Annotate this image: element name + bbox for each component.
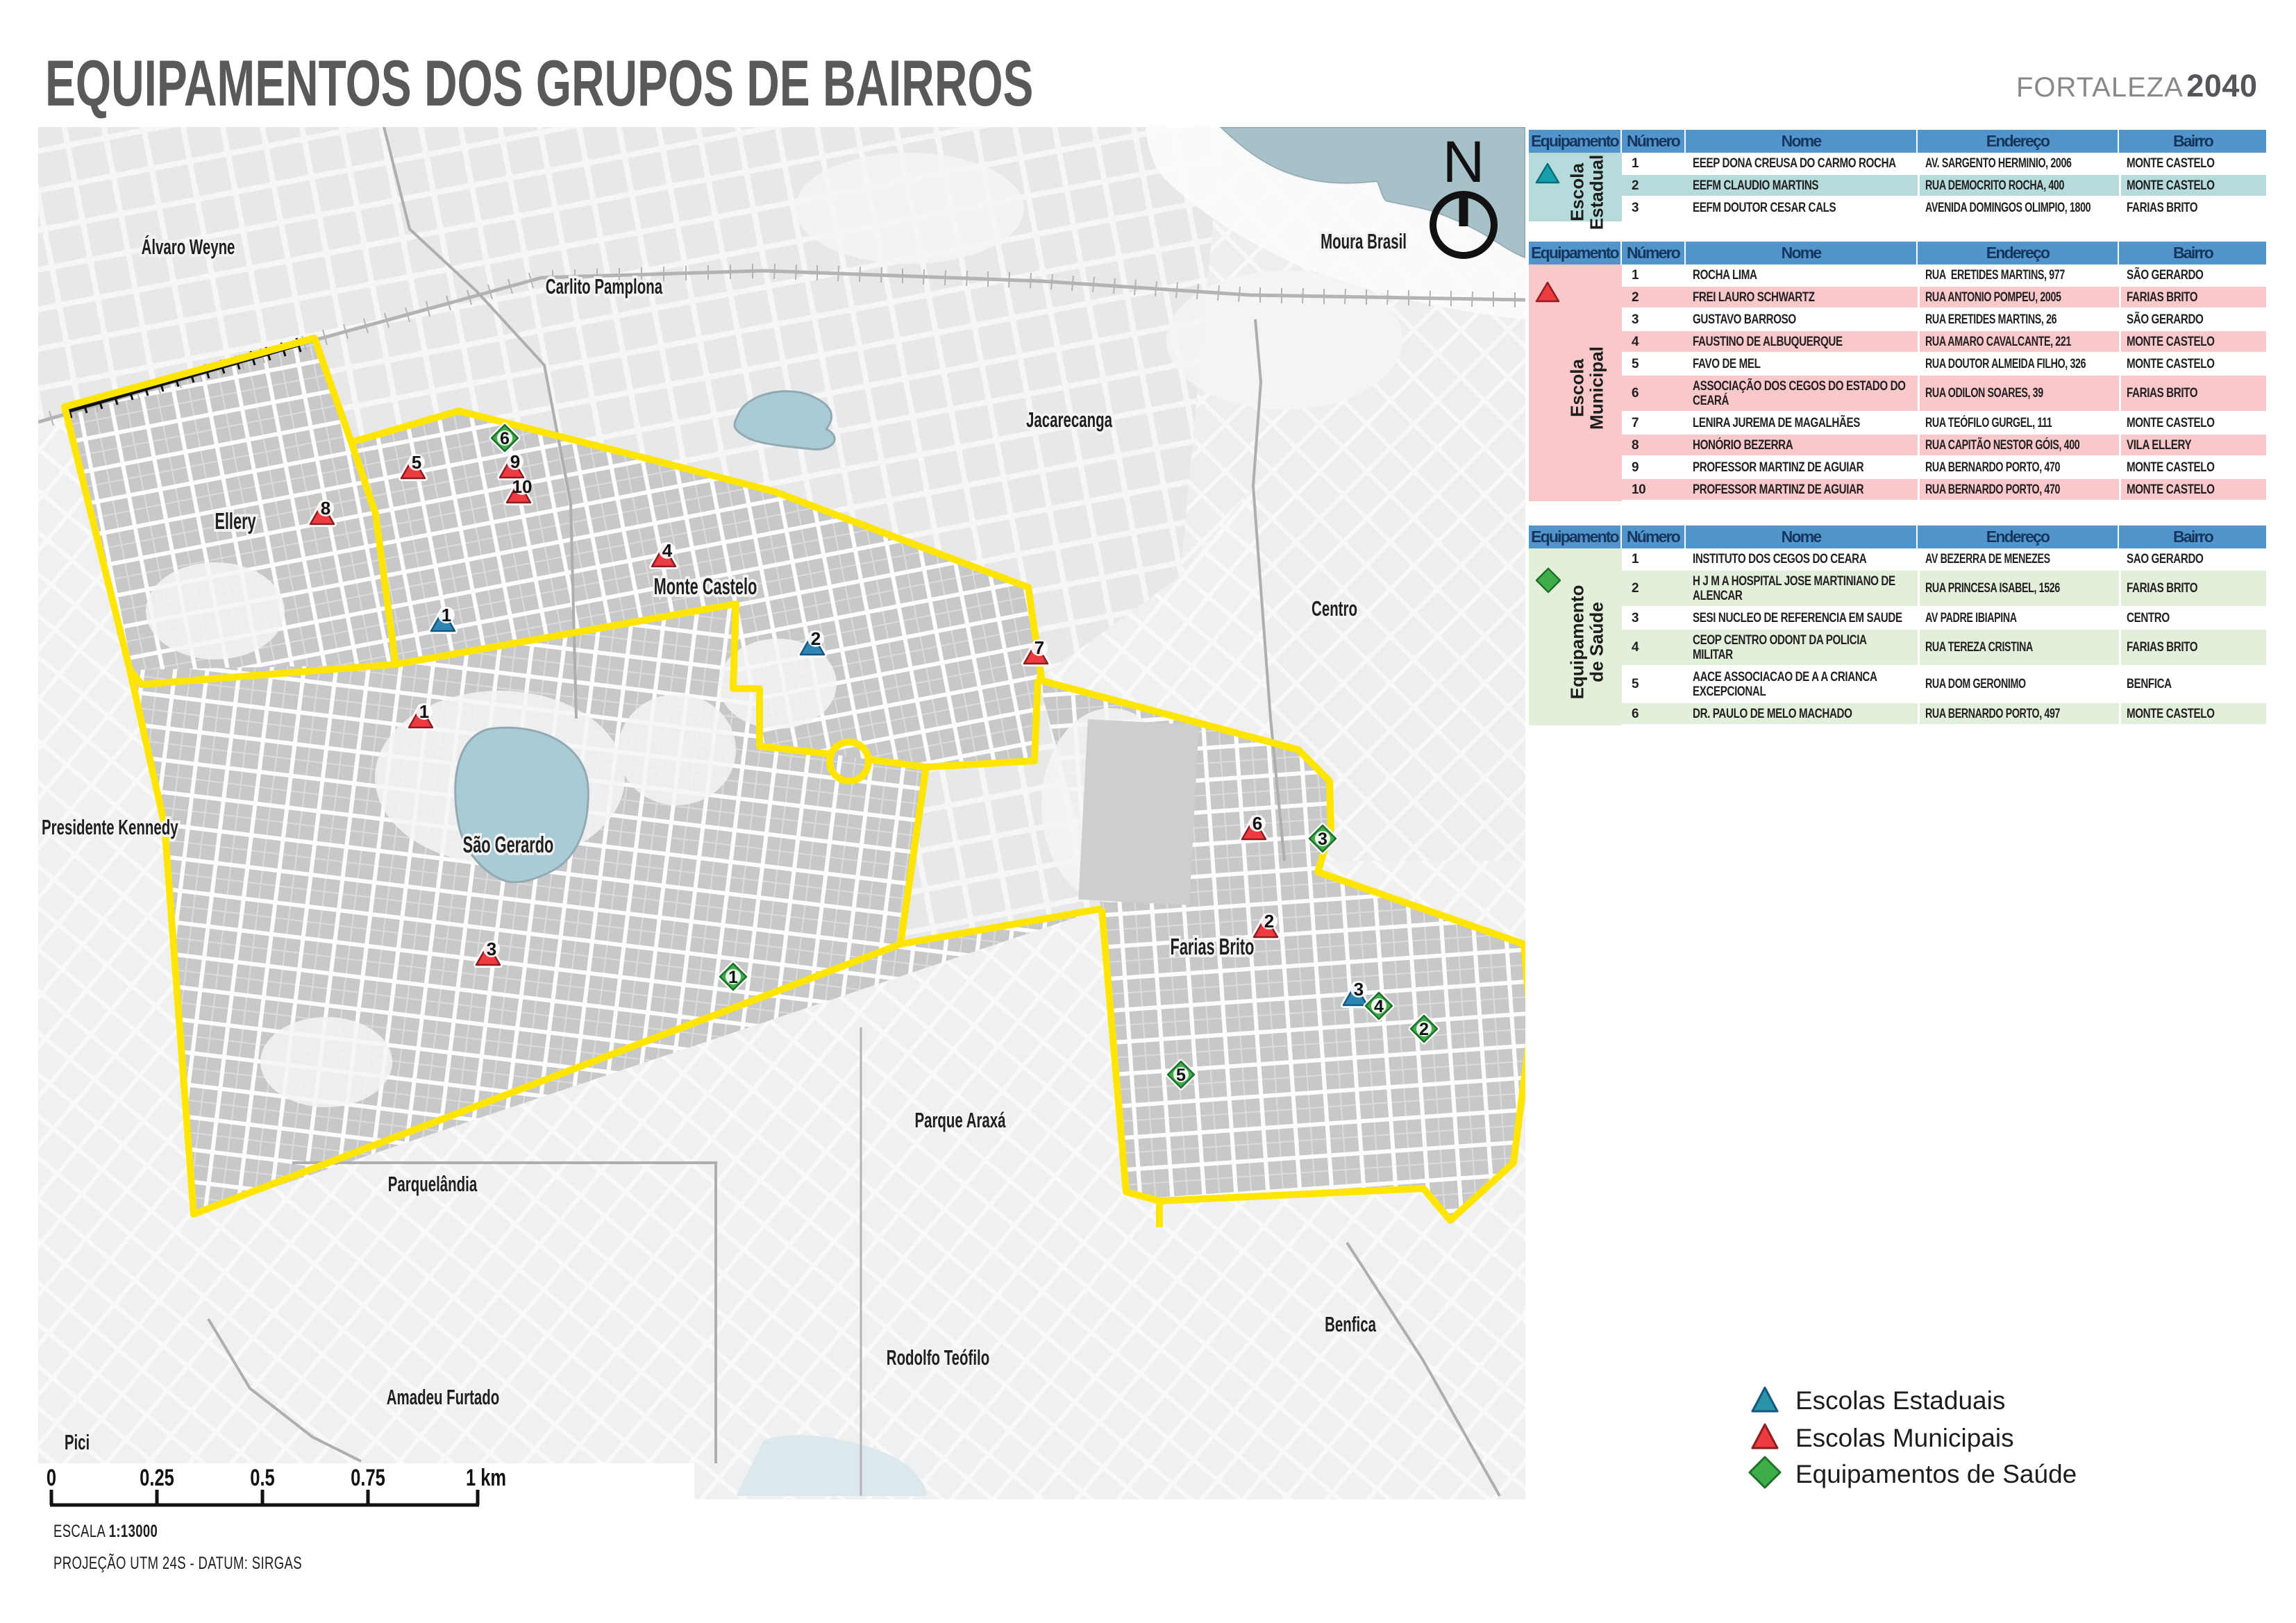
svg-text:9: 9 — [510, 451, 520, 472]
svg-text:1: 1 — [419, 701, 429, 722]
svg-text:8: 8 — [321, 498, 330, 519]
svg-text:Escolas Estaduais: Escolas Estaduais — [1795, 1386, 2005, 1415]
svg-text:1: 1 — [728, 968, 738, 987]
svg-text:Presidente Kennedy: Presidente Kennedy — [42, 815, 178, 839]
svg-text:5: 5 — [412, 452, 421, 473]
svg-text:Equipamentos de Saúde: Equipamentos de Saúde — [1795, 1460, 2077, 1488]
svg-text:2: 2 — [1419, 1020, 1429, 1039]
svg-text:10: 10 — [512, 476, 533, 497]
svg-text:Carlito Pamplona: Carlito Pamplona — [546, 274, 662, 298]
svg-text:4: 4 — [1374, 997, 1384, 1016]
svg-text:2: 2 — [1264, 911, 1274, 932]
svg-text:Rodolfo Teófilo: Rodolfo Teófilo — [887, 1345, 989, 1370]
svg-text:3: 3 — [1318, 830, 1327, 849]
svg-text:6: 6 — [1252, 813, 1262, 834]
svg-text:4: 4 — [662, 540, 673, 561]
svg-text:Moura Brasil: Moura Brasil — [1321, 229, 1407, 253]
svg-text:Jacarecanga: Jacarecanga — [1026, 407, 1112, 432]
svg-text:3: 3 — [487, 939, 496, 959]
svg-text:N: N — [1443, 129, 1485, 194]
svg-text:Escolas Municipais: Escolas Municipais — [1795, 1424, 2014, 1452]
svg-text:Pici: Pici — [65, 1430, 90, 1454]
svg-text:Benfica: Benfica — [1325, 1312, 1376, 1336]
svg-text:Monte Castelo: Monte Castelo — [654, 573, 757, 599]
svg-text:Ellery: Ellery — [215, 508, 256, 534]
svg-text:Farias Brito: Farias Brito — [1171, 934, 1255, 959]
svg-text:Amadeu Furtado: Amadeu Furtado — [387, 1385, 499, 1409]
svg-text:Parquelândia: Parquelândia — [388, 1172, 478, 1196]
svg-text:Centro: Centro — [1312, 596, 1357, 621]
svg-text:3: 3 — [1354, 979, 1364, 1000]
svg-text:2: 2 — [811, 628, 821, 649]
svg-text:6: 6 — [500, 429, 510, 448]
svg-text:1: 1 — [442, 605, 451, 625]
svg-text:Álvaro Weyne: Álvaro Weyne — [142, 235, 235, 259]
svg-text:5: 5 — [1176, 1066, 1186, 1085]
svg-text:7: 7 — [1034, 637, 1044, 658]
svg-text:Parque Araxá: Parque Araxá — [914, 1108, 1005, 1132]
svg-text:São Gerardo: São Gerardo — [463, 832, 554, 857]
